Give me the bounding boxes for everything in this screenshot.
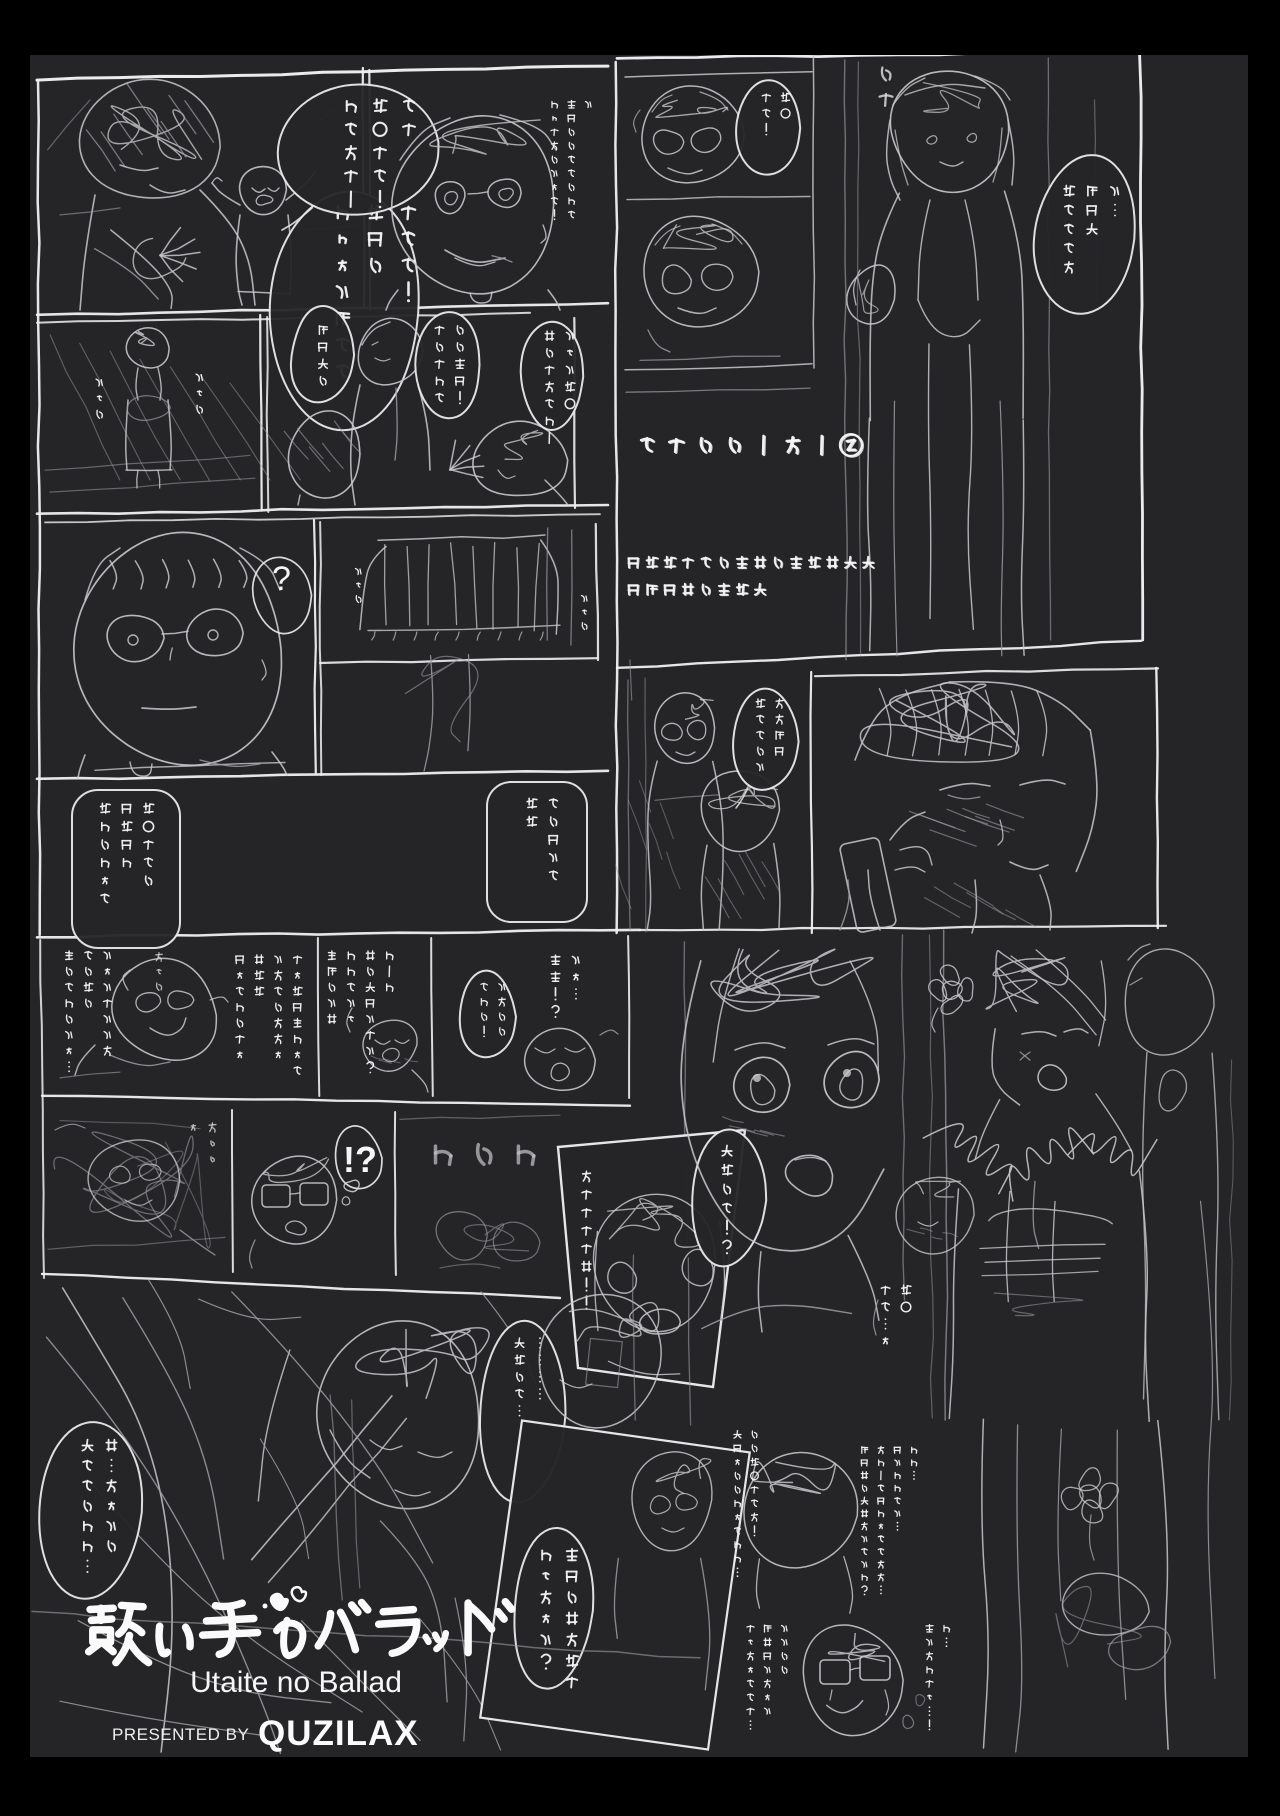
svg-text:Utaite no Ballad: Utaite no Ballad [190,1666,402,1699]
svg-text:!?: !? [343,1139,377,1180]
svg-text:PRESENTED BY: PRESENTED BY [112,1725,249,1744]
svg-text:?: ? [272,560,291,598]
svg-text:QUZILAX: QUZILAX [258,1714,419,1753]
